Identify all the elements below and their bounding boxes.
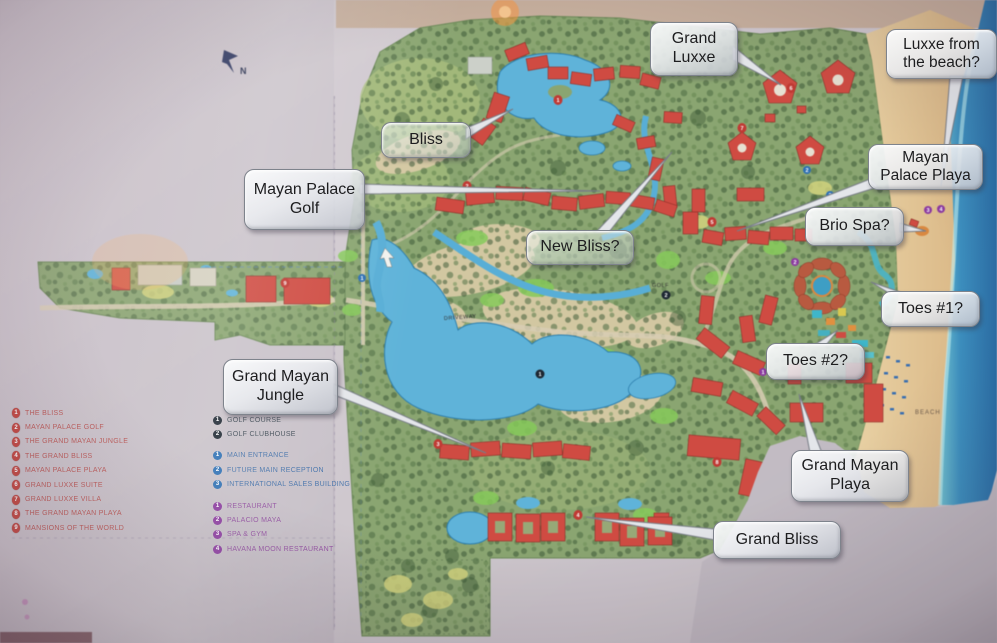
legend-marker-icon: 2 bbox=[12, 423, 20, 433]
legend-marker-icon: 3 bbox=[213, 530, 222, 539]
legend-item: 4THE GRAND BLISS bbox=[12, 449, 128, 463]
callout-grand-bliss: Grand Bliss bbox=[713, 521, 841, 559]
legend-item-label: THE GRAND BLISS bbox=[25, 453, 93, 460]
callout-luxxe-from-the-beach: Luxxe fromthe beach? bbox=[886, 29, 997, 79]
legend-item: 7GRAND LUXXE VILLA bbox=[12, 492, 128, 506]
legend-facilities: 1GOLF COURSE 2GOLF CLUBHOUSE 1MAIN ENTRA… bbox=[213, 413, 350, 557]
callout-toes-1: Toes #1? bbox=[881, 291, 980, 327]
legend-item: 2PALACIO MAYA bbox=[213, 513, 350, 527]
legend-marker-icon: 3 bbox=[213, 480, 222, 489]
map-artwork: GOLF DRIVEWAY BEACH N 1 2 3 4 5 6 7 8 9 … bbox=[0, 0, 997, 643]
legend-item: 1MAIN ENTRANCE bbox=[213, 449, 350, 463]
legend-item: 2GOLF CLUBHOUSE bbox=[213, 427, 350, 441]
legend-item: 6GRAND LUXXE SUITE bbox=[12, 478, 128, 492]
svg-text:1: 1 bbox=[761, 370, 764, 376]
callout-text: Toes #2? bbox=[767, 352, 864, 371]
callout-text: Luxxe bbox=[651, 49, 737, 68]
callout-text: Luxxe from bbox=[887, 36, 996, 54]
legend-marker-icon: 1 bbox=[213, 451, 222, 460]
legend-item: 3SPA & GYM bbox=[213, 528, 350, 542]
legend-marker-icon: 6 bbox=[12, 480, 20, 490]
svg-text:6: 6 bbox=[789, 86, 792, 92]
legend-item-label: MANSIONS OF THE WORLD bbox=[25, 525, 124, 532]
legend-item-label: GRAND LUXXE SUITE bbox=[25, 482, 103, 489]
legend-item: 2FUTURE MAIN RECEPTION bbox=[213, 463, 350, 477]
legend-marker-icon: 7 bbox=[12, 495, 20, 505]
legend-item: 1THE BLISS bbox=[12, 406, 128, 420]
legend-item: 5MAYAN PALACE PLAYA bbox=[12, 464, 128, 478]
legend-marker-icon: 4 bbox=[213, 545, 222, 554]
legend-item: 3THE GRAND MAYAN JUNGLE bbox=[12, 435, 128, 449]
callout-text: Grand Mayan bbox=[792, 457, 908, 476]
callout-text: New Bliss? bbox=[527, 238, 633, 257]
callout-grand-mayan-playa: Grand MayanPlaya bbox=[791, 450, 909, 502]
legend-marker-icon: 4 bbox=[12, 451, 20, 461]
golf-label: GOLF bbox=[652, 283, 669, 289]
callout-mayan-palace-playa: MayanPalace Playa bbox=[868, 144, 983, 190]
svg-text:2: 2 bbox=[664, 293, 667, 299]
svg-text:5: 5 bbox=[710, 220, 713, 226]
callout-text: Mayan bbox=[869, 149, 982, 167]
svg-text:2: 2 bbox=[793, 260, 796, 266]
callout-text: Brio Spa? bbox=[806, 217, 903, 236]
callout-text: Palace Playa bbox=[869, 167, 982, 185]
callout-text: Grand Bliss bbox=[714, 531, 840, 550]
callout-text: Grand Mayan bbox=[224, 368, 337, 387]
palacio-maya-building bbox=[794, 258, 850, 314]
legend-marker-icon: 1 bbox=[213, 416, 222, 425]
legend-item-label: THE GRAND MAYAN PLAYA bbox=[25, 510, 122, 517]
legend-marker-icon: 3 bbox=[12, 437, 20, 447]
callout-text: Jungle bbox=[224, 387, 337, 406]
svg-text:2: 2 bbox=[805, 168, 808, 174]
legend-marker-icon: 2 bbox=[213, 516, 222, 525]
legend-item-label: MAYAN PALACE PLAYA bbox=[25, 467, 107, 474]
svg-text:8: 8 bbox=[715, 460, 718, 466]
svg-text:9: 9 bbox=[283, 281, 286, 287]
legend-marker-icon: 1 bbox=[213, 502, 222, 511]
callout-text: Mayan Palace bbox=[245, 181, 364, 200]
legend-item-label: HAVANA MOON RESTAURANT bbox=[227, 546, 334, 553]
legend-item: 4HAVANA MOON RESTAURANT bbox=[213, 542, 350, 556]
callout-new-bliss: New Bliss? bbox=[526, 230, 634, 265]
svg-text:1: 1 bbox=[556, 98, 559, 104]
legend-item: 8THE GRAND MAYAN PLAYA bbox=[12, 507, 128, 521]
svg-text:1: 1 bbox=[360, 276, 363, 282]
callout-grand-luxxe: GrandLuxxe bbox=[650, 22, 738, 76]
callout-mayan-palace-golf: Mayan PalaceGolf bbox=[244, 169, 365, 230]
legend-marker-icon: 2 bbox=[213, 430, 222, 439]
legend-item-label: GOLF COURSE bbox=[227, 417, 281, 424]
legend-marker-icon: 5 bbox=[12, 466, 20, 476]
compass-label: N bbox=[240, 66, 247, 76]
legend-item-label: MAYAN PALACE GOLF bbox=[25, 424, 104, 431]
callout-text: Grand bbox=[651, 30, 737, 49]
callout-text: Bliss bbox=[382, 131, 470, 150]
callout-text: Playa bbox=[792, 476, 908, 495]
legend-resorts: 1THE BLISS 2MAYAN PALACE GOLF 3THE GRAND… bbox=[12, 406, 128, 536]
callout-brio-spa: Brio Spa? bbox=[805, 207, 904, 246]
svg-text:7: 7 bbox=[740, 126, 743, 132]
legend-marker-icon: 2 bbox=[213, 466, 222, 475]
legend-item-label: RESTAURANT bbox=[227, 503, 277, 510]
legend-item-label: INTERNATIONAL SALES BUILDING bbox=[227, 481, 350, 488]
callout-bliss: Bliss bbox=[381, 122, 471, 158]
legend-marker-icon: 8 bbox=[12, 509, 20, 519]
legend-item: 9MANSIONS OF THE WORLD bbox=[12, 521, 128, 535]
resort-map-photo: GOLF DRIVEWAY BEACH N 1 2 3 4 5 6 7 8 9 … bbox=[0, 0, 997, 643]
legend-item: 2MAYAN PALACE GOLF bbox=[12, 420, 128, 434]
legend-item-label: GRAND LUXXE VILLA bbox=[25, 496, 101, 503]
svg-text:1: 1 bbox=[538, 372, 541, 378]
legend-item: 1GOLF COURSE bbox=[213, 413, 350, 427]
legend-marker-icon: 1 bbox=[12, 408, 20, 418]
callout-toes-2: Toes #2? bbox=[766, 343, 865, 380]
legend-item-label: THE GRAND MAYAN JUNGLE bbox=[25, 438, 128, 445]
callout-text: Golf bbox=[245, 200, 364, 219]
callout-grand-mayan-jungle: Grand MayanJungle bbox=[223, 359, 338, 415]
legend-item-label: PALACIO MAYA bbox=[227, 517, 281, 524]
beach-label: BEACH bbox=[915, 410, 941, 416]
svg-text:3: 3 bbox=[436, 442, 439, 448]
legend-marker-icon: 9 bbox=[12, 523, 20, 533]
legend-item-label: MAIN ENTRANCE bbox=[227, 452, 289, 459]
legend-item-label: SPA & GYM bbox=[227, 531, 267, 538]
callout-text: the beach? bbox=[887, 54, 996, 72]
callout-text: Toes #1? bbox=[882, 300, 979, 319]
svg-text:3: 3 bbox=[926, 208, 929, 214]
legend-item-label: THE BLISS bbox=[25, 410, 64, 417]
legend-item-label: GOLF CLUBHOUSE bbox=[227, 431, 296, 438]
legend-item: 3INTERNATIONAL SALES BUILDING bbox=[213, 478, 350, 492]
legend-item: 1RESTAURANT bbox=[213, 499, 350, 513]
legend-item-label: FUTURE MAIN RECEPTION bbox=[227, 467, 324, 474]
